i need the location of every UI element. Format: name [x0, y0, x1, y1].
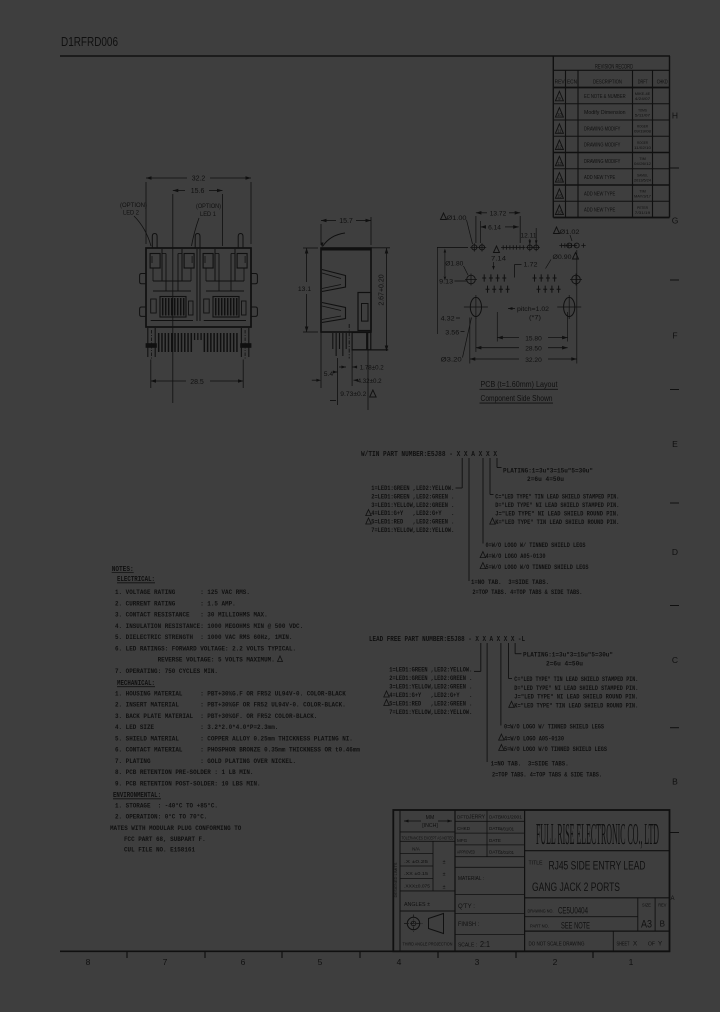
svg-text:5=W/O LOGO W/O TINNED SHIELD L: 5=W/O LOGO W/O TINNED SHIELD LEGS — [504, 746, 607, 753]
svg-text:CUL FILE NO. E158161: CUL FILE NO. E158161 — [124, 847, 195, 854]
svg-text:2=TOP TABS. 4=TOP TABS & SIDE: 2=TOP TABS. 4=TOP TABS & SIDE TABS. — [492, 771, 602, 778]
svg-text:4. LED SIZE : 3.2*: 4. LED SIZE : 3.2*2.0*4.0*P=2.3mm. — [115, 724, 278, 731]
svg-text:13.1: 13.1 — [298, 286, 311, 293]
svg-text:DRAWING MODIFY: DRAWING MODIFY — [584, 159, 621, 165]
svg-text:C: C — [672, 655, 678, 665]
svg-text:5. DIELECTRIC STRENGTH : 1000: 5. DIELECTRIC STRENGTH : 1000 VAC RMS 60… — [115, 634, 293, 641]
svg-text:DO NOT SCALE DRAWING: DO NOT SCALE DRAWING — [529, 942, 585, 948]
svg-text:C="LED TYPE" TIN LEAD SHIELD S: C="LED TYPE" TIN LEAD SHIELD STAMPED PIN… — [514, 676, 638, 683]
svg-text:6. LED RATINGS: FORWARD VOLTAG: 6. LED RATINGS: FORWARD VOLTAGE: 2.2 VOL… — [115, 645, 296, 652]
svg-text:5.4: 5.4 — [324, 371, 334, 378]
svg-text:5=LED1:RED ,LED2:GREEN .: 5=LED1:RED ,LED2:GREEN . — [371, 519, 454, 526]
svg-text:Y: Y — [658, 941, 662, 948]
svg-text:±: ± — [443, 884, 446, 890]
svg-text:0=W/O LOGO W/ TINNED SHIELD LE: 0=W/O LOGO W/ TINNED SHIELD LEGS — [504, 724, 604, 731]
svg-text:6.14: 6.14 — [488, 225, 501, 232]
svg-text:SIZE: SIZE — [642, 903, 651, 908]
svg-text:5=W/O LOGO W/O TINNED SHIELD L: 5=W/O LOGO W/O TINNED SHIELD LEGS — [486, 564, 589, 571]
svg-text:09/19/08: 09/19/08 — [634, 129, 651, 134]
svg-text:C="LED TYPE" TIN LEAD SHIELD S: C="LED TYPE" TIN LEAD SHIELD STAMPED PIN… — [495, 493, 619, 500]
svg-text:ADD NEW TYPE: ADD NEW TYPE — [584, 175, 616, 181]
svg-text:2: 2 — [553, 957, 558, 967]
svg-text:W/TIN PART NUMBER:E5J88 - X X: W/TIN PART NUMBER:E5J88 - X X A X X X — [361, 451, 498, 459]
svg-text:1=NO TAB. 3=SIDE TABS.: 1=NO TAB. 3=SIDE TABS. — [471, 579, 549, 586]
svg-text:J="LED TYPE" NI LEAD SHIELD RO: J="LED TYPE" NI LEAD SHIELD ROUND PIN. — [495, 511, 619, 518]
svg-text:JERRY: JERRY — [469, 815, 485, 821]
svg-text:FULL RISE ELECTRONIC CO., LTD: FULL RISE ELECTRONIC CO., LTD — [536, 816, 659, 851]
svg-text:.XXX±0.075: .XXX±0.075 — [404, 884, 430, 889]
svg-text:0=W/O LOGO W/ TINNED SHIELD LE: 0=W/O LOGO W/ TINNED SHIELD LEGS — [486, 542, 586, 549]
svg-text:Modify Dimension: Modify Dimension — [584, 110, 626, 116]
svg-text:4: 4 — [397, 957, 402, 967]
svg-text:2=LED1:GREEN ,LED2:GREEN .: 2=LED1:GREEN ,LED2:GREEN . — [371, 493, 454, 500]
svg-text:F: F — [672, 330, 677, 340]
svg-text:Ø3.20: Ø3.20 — [441, 357, 462, 364]
svg-text:THIRD ANGLE PROJECTION: THIRD ANGLE PROJECTION — [403, 941, 453, 946]
svg-text:N/A: N/A — [412, 847, 421, 852]
svg-text:LED 1: LED 1 — [200, 211, 217, 218]
svg-text:APPROVED: APPROVED — [457, 850, 475, 855]
svg-text:ECN: ECN — [567, 80, 577, 86]
svg-text:3. BACK PLATE MATERIAL : PBT+: 3. BACK PLATE MATERIAL : PBT+30%GF. OR F… — [115, 713, 317, 720]
svg-text:REVERSE VOLTAGE: 5 VOLTS MAXIM: REVERSE VOLTAGE: 5 VOLTS MAXIMUM. — [115, 657, 275, 664]
svg-text:14: 14 — [557, 177, 562, 182]
svg-text:2:1: 2:1 — [480, 939, 490, 949]
svg-text:28.5: 28.5 — [190, 379, 204, 386]
svg-text:1=LED1:GREEN ,LED2:YELLOW.: 1=LED1:GREEN ,LED2:YELLOW. — [389, 667, 472, 674]
svg-text:(OPTION): (OPTION) — [196, 203, 221, 210]
svg-text:SCALE :: SCALE : — [458, 943, 477, 949]
svg-text:DRAWING NO.: DRAWING NO. — [528, 909, 554, 914]
svg-text:1=LED1:GREEN ,LED2:YELLOW.: 1=LED1:GREEN ,LED2:YELLOW. — [371, 485, 454, 492]
svg-text:7=LED1:YELLOW,LED2:YELLOW.: 7=LED1:YELLOW,LED2:YELLOW. — [389, 709, 472, 716]
svg-text:EC NOTE & NUMBER: EC NOTE & NUMBER — [584, 94, 626, 100]
svg-text:12: 12 — [557, 145, 562, 150]
svg-text:Ø1.80: Ø1.80 — [445, 261, 463, 268]
svg-text:7.14: 7.14 — [491, 256, 506, 263]
svg-text:PCB (t=1.60mm) Layout: PCB (t=1.60mm) Layout — [481, 380, 559, 389]
svg-text:TITLE: TITLE — [529, 861, 543, 867]
svg-text:3=LED1:YELLOW,LED2:GREEN .: 3=LED1:YELLOW,LED2:GREEN . — [371, 502, 454, 509]
svg-text:REV: REV — [658, 903, 666, 908]
svg-text:K="LED TYPE" TIN LEAD SHIELD R: K="LED TYPE" TIN LEAD SHIELD ROUND PIN. — [495, 519, 619, 526]
svg-text:X: X — [633, 941, 637, 948]
svg-text:12.11: 12.11 — [520, 233, 536, 240]
svg-text:6. CONTACT MATERIAL : PHOS: 6. CONTACT MATERIAL : PHOSPHOR BRONZE 0.… — [115, 747, 360, 754]
svg-text:±: ± — [443, 860, 446, 866]
svg-text:[INCH]: [INCH] — [422, 823, 438, 829]
svg-text:3=LED1:YELLOW,LED2:GREEN .: 3=LED1:YELLOW,LED2:GREEN . — [389, 684, 472, 691]
svg-text:D: D — [672, 547, 678, 557]
svg-text:ANGLES ±: ANGLES ± — [404, 902, 430, 908]
svg-text:7. PLATING : GOLD: 7. PLATING : GOLD PLATING OVER NICKEL. — [115, 758, 296, 765]
svg-text:7. OPERATING: 750 CYCLES MIN.: 7. OPERATING: 750 CYCLES MIN. — [115, 668, 218, 675]
svg-text:REVISION RECORD: REVISION RECORD — [595, 64, 633, 71]
svg-text:28.50: 28.50 — [525, 346, 542, 353]
svg-text:DRAWING MODIFY: DRAWING MODIFY — [584, 126, 621, 132]
svg-text:TOLERANCES EXCEPT AS NOTED: TOLERANCES EXCEPT AS NOTED — [402, 836, 454, 841]
svg-text:DESIGNED LIMITS: DESIGNED LIMITS — [393, 862, 398, 897]
svg-text:SHEET: SHEET — [617, 942, 631, 948]
svg-text:REV: REV — [555, 80, 565, 86]
svg-text:5=LED1:RED ,LED2:GREEN .: 5=LED1:RED ,LED2:GREEN . — [389, 701, 472, 708]
svg-text:.XX ±0.15: .XX ±0.15 — [404, 871, 429, 876]
svg-text:8: 8 — [86, 957, 91, 967]
svg-text:7: 7 — [163, 957, 168, 967]
svg-text:2. OPERATION: 0°C TO 70°C.: 2. OPERATION: 0°C TO 70°C. — [115, 813, 207, 821]
svg-text:SEE NOTE: SEE NOTE — [561, 921, 590, 931]
svg-text:10: 10 — [557, 112, 562, 117]
svg-text:7=LED1:YELLOW,LED2:YELLOW.: 7=LED1:YELLOW,LED2:YELLOW. — [371, 527, 454, 534]
svg-text:RJ45 SIDE ENTRY LEAD: RJ45 SIDE ENTRY LEAD — [549, 861, 646, 873]
svg-text:MFG: MFG — [457, 838, 468, 843]
svg-text:11/02/10: 11/02/10 — [634, 145, 652, 150]
svg-text:CE5U0404: CE5U0404 — [558, 906, 588, 916]
svg-text:A3: A3 — [641, 919, 652, 931]
svg-text:1.78±0.2: 1.78±0.2 — [360, 364, 384, 371]
svg-text:pitch=1.02: pitch=1.02 — [517, 306, 549, 313]
svg-text:MAY/3/17: MAY/3/17 — [634, 194, 651, 199]
svg-text:04/26/12: 04/26/12 — [634, 161, 651, 166]
svg-text:9.73±0.2: 9.73±0.2 — [340, 391, 366, 398]
svg-text:9. PCB RETENTION POST-SOLDER:: 9. PCB RETENTION POST-SOLDER: 10 LBS MIN… — [115, 780, 261, 787]
svg-text:MATES WITH MODULAR PLUG CONFOR: MATES WITH MODULAR PLUG CONFORMING TO — [110, 825, 241, 832]
svg-text:ADD NEW TYPE: ADD NEW TYPE — [584, 191, 616, 197]
svg-text:Component Side Shown: Component Side Shown — [481, 394, 553, 403]
svg-text:4=W/O LOGO A05-0130: 4=W/O LOGO A05-0130 — [486, 553, 546, 560]
svg-text:1.72: 1.72 — [524, 262, 538, 269]
svg-text:LEAD FREE PART NUMBER:E5J88 -: LEAD FREE PART NUMBER:E5J88 - X X A X X … — [369, 636, 525, 644]
svg-text:6: 6 — [241, 957, 246, 967]
svg-text:15.80: 15.80 — [525, 335, 542, 342]
svg-text:4. INSULATION RESISTANCE: 1000: 4. INSULATION RESISTANCE: 1000 MEGOHMS M… — [115, 623, 303, 630]
svg-text:2. CURRENT RATING : 1.5: 2. CURRENT RATING : 1.5 AMP. — [115, 600, 236, 607]
svg-text:1. VOLTAGE RATING : 125: 1. VOLTAGE RATING : 125 VAC RMS. — [115, 589, 250, 596]
svg-text:4/01/01: 4/01/01 — [500, 850, 515, 855]
svg-text:D="LED TYPE" NI LEAD SHIELD ST: D="LED TYPE" NI LEAD SHIELD STAMPED PIN. — [514, 685, 638, 692]
svg-text:4/24/07: 4/24/07 — [635, 96, 650, 101]
svg-text:DFTD: DFTD — [457, 814, 470, 819]
svg-text:CHKD: CHKD — [457, 826, 471, 831]
svg-text:±: ± — [443, 872, 446, 878]
svg-text:4.32: 4.32 — [441, 316, 455, 323]
svg-text:2=6u 4=50u: 2=6u 4=50u — [527, 476, 564, 483]
svg-text:8. PCB RETENTION PRE-SOLDER :: 8. PCB RETENTION PRE-SOLDER : 1 LB MIN. — [115, 769, 253, 776]
svg-text:2=TOP TABS. 4=TOP TABS & SIDE: 2=TOP TABS. 4=TOP TABS & SIDE TABS. — [472, 589, 582, 596]
svg-text:.X ±0.25: .X ±0.25 — [404, 859, 429, 864]
svg-text:B: B — [660, 920, 665, 929]
svg-text:2=6u 4=50u: 2=6u 4=50u — [546, 661, 583, 668]
svg-text:9.13: 9.13 — [439, 279, 453, 286]
svg-text:1. STORAGE : -40°C TO +85°C.: 1. STORAGE : -40°C TO +85°C. — [115, 801, 218, 809]
svg-text:DRFT: DRFT — [638, 80, 648, 86]
svg-text:32.2: 32.2 — [192, 176, 206, 183]
svg-text:13: 13 — [557, 161, 562, 166]
svg-text:5/11/07: 5/11/07 — [635, 112, 650, 117]
svg-text:FCC PART 68, SUBPART F.: FCC PART 68, SUBPART F. — [124, 836, 206, 843]
svg-text:4.32±0.2: 4.32±0.2 — [358, 378, 382, 385]
svg-text:PLATING:1=3u"3=15u"5=30u": PLATING:1=3u"3=15u"5=30u" — [523, 652, 613, 659]
svg-text:Ø0.90: Ø0.90 — [553, 254, 572, 261]
svg-text:13.72: 13.72 — [490, 210, 507, 217]
svg-text:DATE: DATE — [489, 838, 501, 843]
svg-text:15.7: 15.7 — [339, 218, 353, 225]
svg-text:PART NO.: PART NO. — [530, 924, 549, 929]
svg-text:4/01/2001: 4/01/2001 — [500, 815, 522, 821]
svg-text:3. CONTACT RESISTANCE : 30 M: 3. CONTACT RESISTANCE : 30 MILLIOHMS MAX… — [115, 612, 268, 619]
svg-text:16: 16 — [557, 210, 562, 215]
svg-text:MM: MM — [426, 815, 435, 821]
svg-text:5: 5 — [318, 957, 323, 967]
svg-text:LED 2: LED 2 — [123, 210, 140, 217]
svg-text:Q'TY :: Q'TY : — [458, 903, 475, 910]
svg-text:E: E — [672, 439, 678, 449]
svg-text:MATERIAL :: MATERIAL : — [458, 876, 484, 882]
svg-text:5. SHIELD MATERIAL : COPP: 5. SHIELD MATERIAL : COPPER ALLOY 0.25mm… — [115, 735, 353, 742]
svg-text:PLATING:1=3u"3=15u"5=30u": PLATING:1=3u"3=15u"5=30u" — [503, 468, 593, 475]
svg-text:1: 1 — [629, 957, 634, 967]
svg-text:15: 15 — [557, 193, 562, 198]
svg-text:GANG JACK 2 PORTS: GANG JACK 2 PORTS — [532, 882, 620, 894]
svg-text:G: G — [672, 216, 679, 226]
svg-text:2=LED1:GREEN ,LED2:GREEN .: 2=LED1:GREEN ,LED2:GREEN . — [389, 675, 472, 682]
svg-text:1. HOUSING MATERIAL : PBT+: 1. HOUSING MATERIAL : PBT+30%G.F OR FR52… — [115, 690, 346, 697]
svg-text:2. INSERT MATERIAL : PBT+: 2. INSERT MATERIAL : PBT+30%GF OR FR52 U… — [115, 702, 346, 709]
svg-text:7/31/19: 7/31/19 — [635, 210, 650, 215]
svg-text:4/01/01: 4/01/01 — [500, 826, 515, 831]
svg-text:FINISH :: FINISH : — [458, 921, 479, 928]
svg-text:J="LED TYPE" NI LEAD SHIELD RO: J="LED TYPE" NI LEAD SHIELD ROUND PIN. — [514, 694, 638, 701]
svg-text:15.6: 15.6 — [191, 188, 205, 195]
svg-text:B: B — [672, 777, 678, 787]
svg-text:Ø1.00: Ø1.00 — [447, 215, 467, 222]
svg-text:D1RFRD006: D1RFRD006 — [61, 35, 118, 49]
svg-text:4=LED1:G+Y ,LED2:G+Y .: 4=LED1:G+Y ,LED2:G+Y . — [371, 510, 454, 517]
svg-text:H: H — [672, 111, 678, 121]
svg-text:3.56: 3.56 — [445, 330, 459, 337]
svg-text:32.20: 32.20 — [525, 357, 542, 364]
svg-text:DESCRIPTION: DESCRIPTION — [593, 80, 622, 86]
svg-text:DRAWING MODIFY: DRAWING MODIFY — [584, 143, 621, 149]
svg-text:OF: OF — [648, 942, 656, 948]
svg-text:Ø1.02: Ø1.02 — [560, 229, 580, 236]
svg-text:D="LED TYPE" NI LEAD SHIELD ST: D="LED TYPE" NI LEAD SHIELD STAMPED PIN. — [495, 502, 619, 509]
svg-text:CHKD: CHKD — [657, 80, 668, 86]
svg-text:3: 3 — [475, 957, 480, 967]
svg-text:K="LED TYPE" TIN LEAD SHIELD R: K="LED TYPE" TIN LEAD SHIELD ROUND PIN. — [514, 702, 638, 709]
svg-text:11: 11 — [557, 128, 562, 133]
svg-text:2013/5/24: 2013/5/24 — [634, 177, 652, 182]
svg-text:2.67+0.20: 2.67+0.20 — [379, 274, 386, 305]
svg-text:(*7): (*7) — [529, 315, 541, 322]
svg-text:4=W/O LOGO A05-0130: 4=W/O LOGO A05-0130 — [504, 736, 564, 743]
svg-text:(OPTION): (OPTION) — [120, 202, 147, 209]
svg-text:4=LED1:G+Y ,LED2:G+Y .: 4=LED1:G+Y ,LED2:G+Y . — [389, 692, 472, 699]
svg-text:A: A — [670, 896, 674, 902]
svg-text:1=NO TAB. 3=SIDE TABS.: 1=NO TAB. 3=SIDE TABS. — [491, 760, 569, 767]
svg-text:ADD NEW TYPE: ADD NEW TYPE — [584, 208, 616, 214]
